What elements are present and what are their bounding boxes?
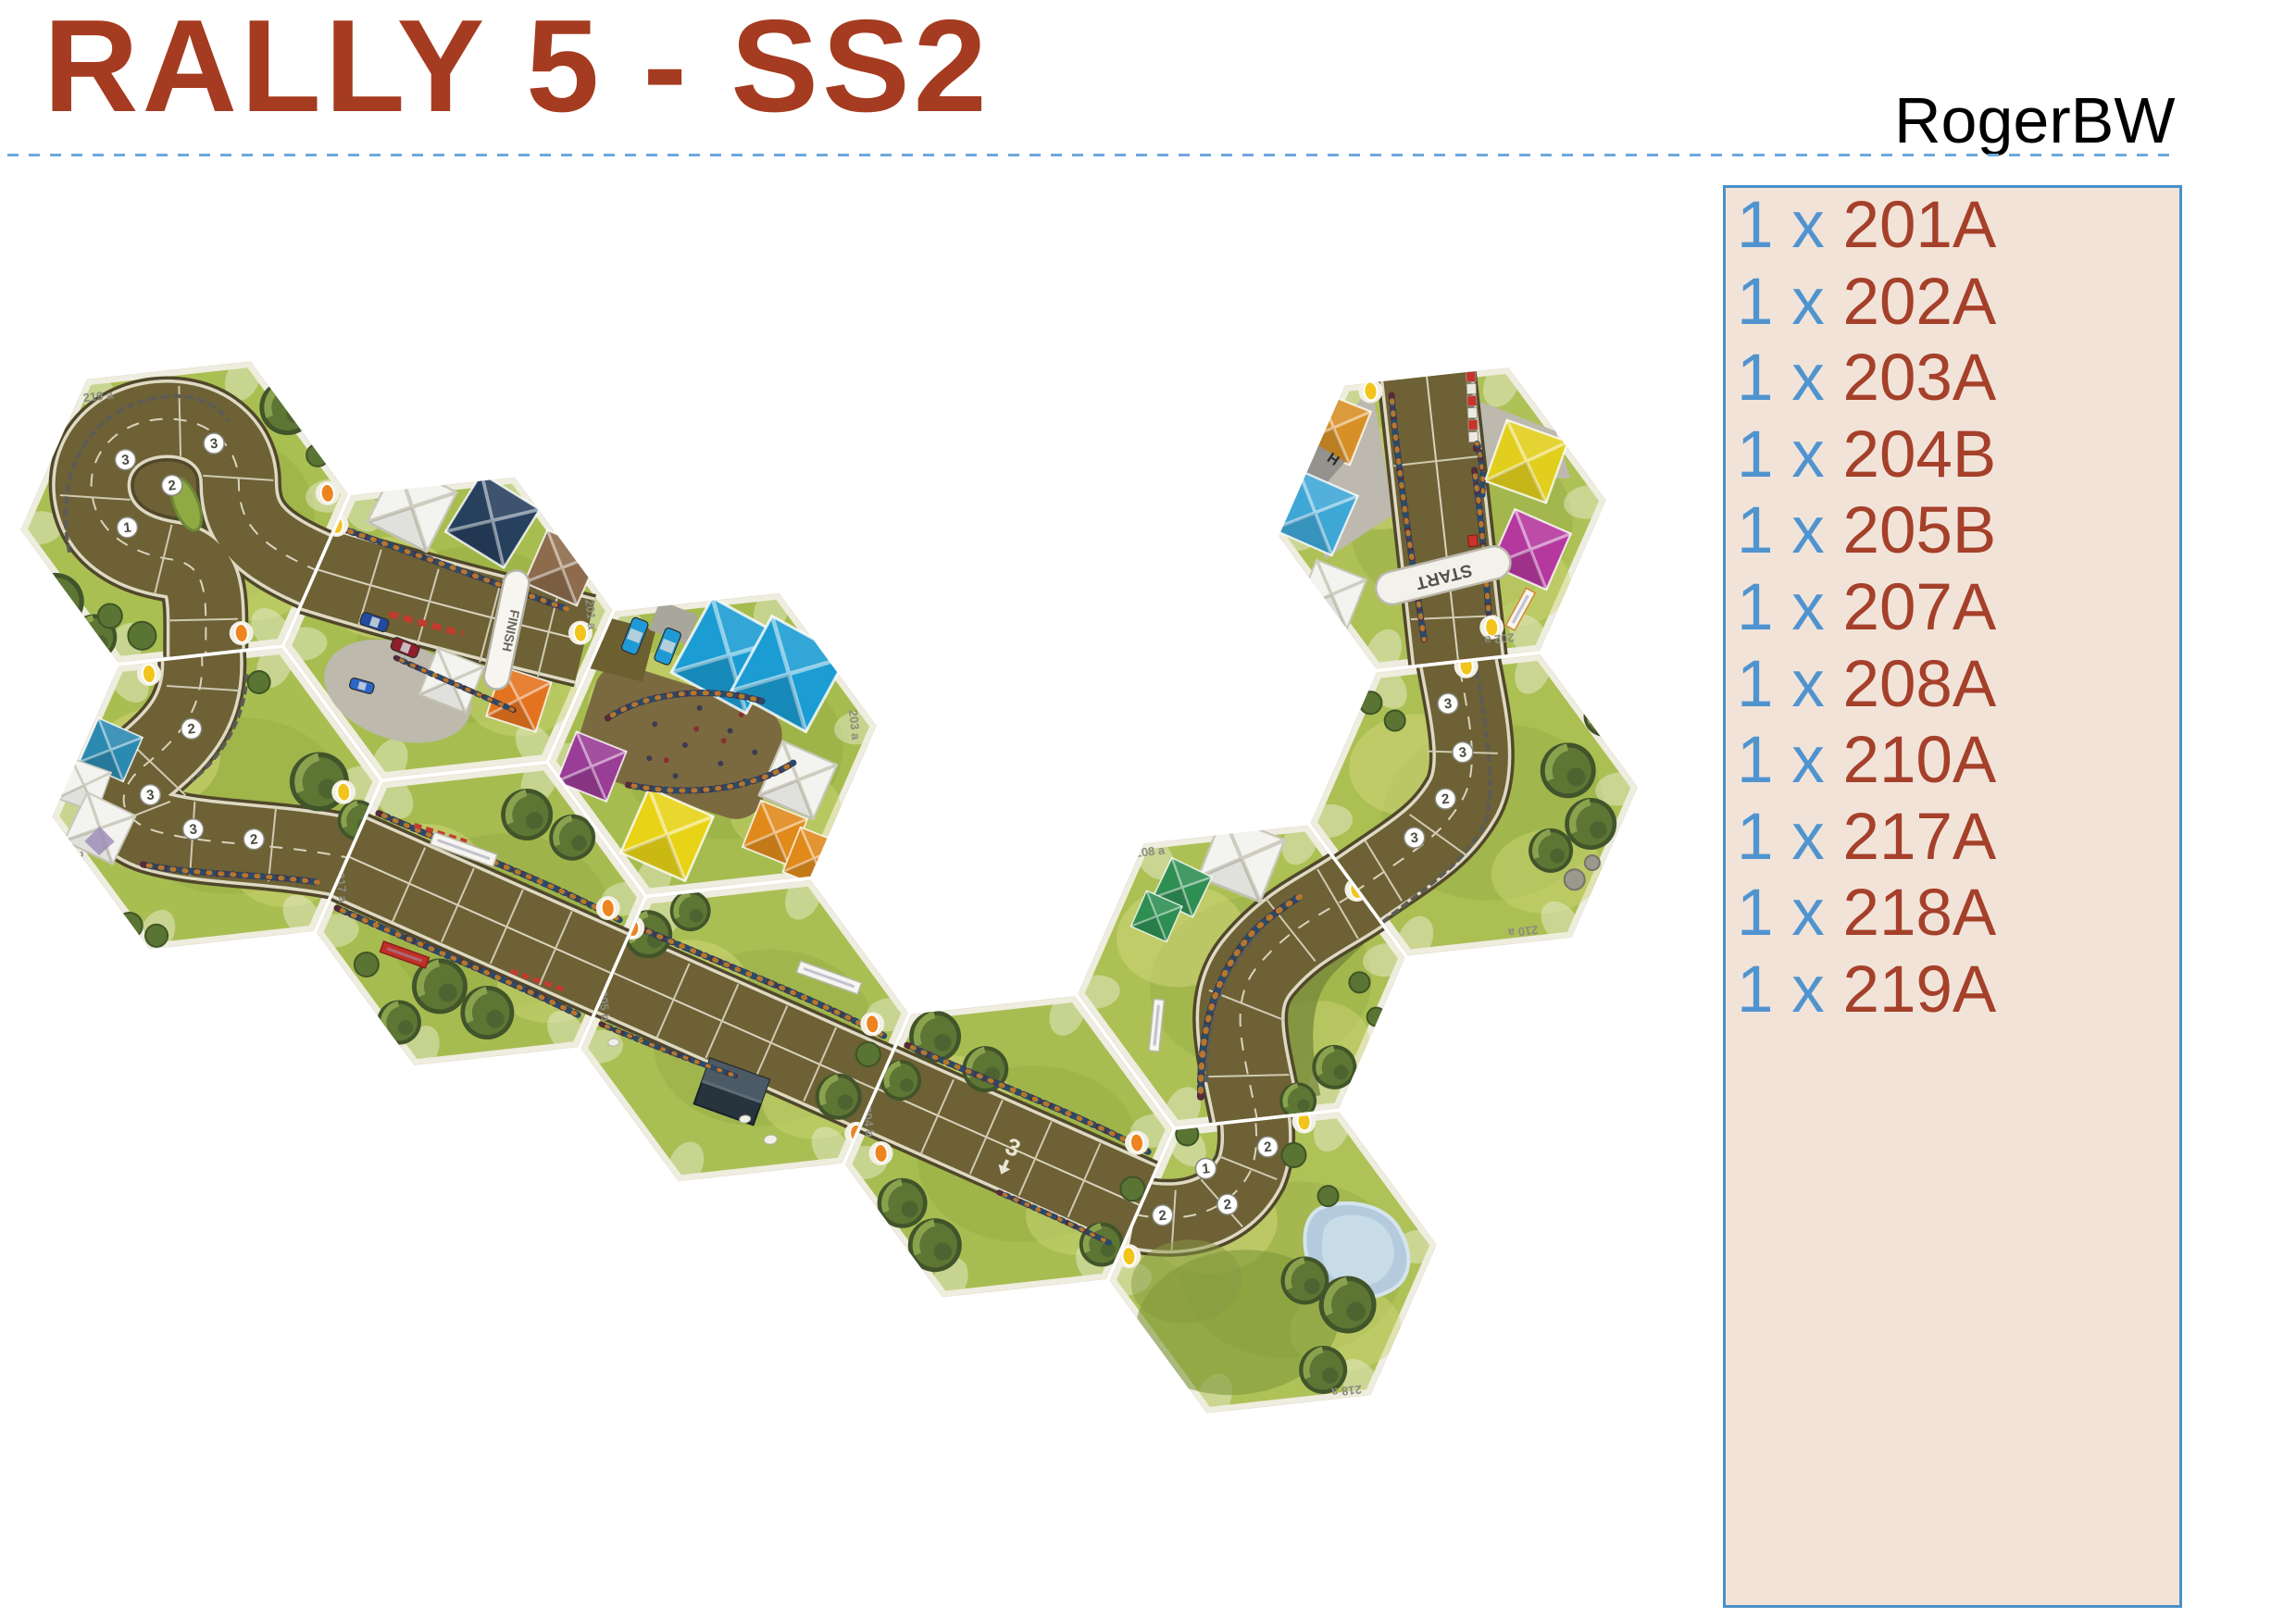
svg-text:207 a: 207 a <box>72 851 90 883</box>
